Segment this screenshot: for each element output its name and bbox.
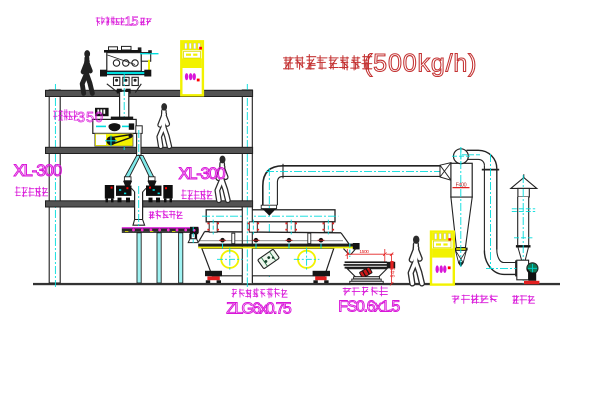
svg-text:XL-300: XL-300 bbox=[179, 165, 226, 183]
svg-text:1.5: 1.5 bbox=[125, 13, 139, 28]
svg-text:FS0.6x1.5: FS0.6x1.5 bbox=[338, 299, 400, 316]
svg-text:350: 350 bbox=[77, 110, 103, 126]
svg-text:545: 545 bbox=[391, 268, 397, 278]
svg-text:XL-300: XL-300 bbox=[14, 162, 63, 180]
svg-text:1500: 1500 bbox=[359, 249, 369, 255]
svg-text:(500kg/h): (500kg/h) bbox=[364, 50, 477, 78]
svg-text:ZLG6x0.75: ZLG6x0.75 bbox=[226, 301, 292, 318]
